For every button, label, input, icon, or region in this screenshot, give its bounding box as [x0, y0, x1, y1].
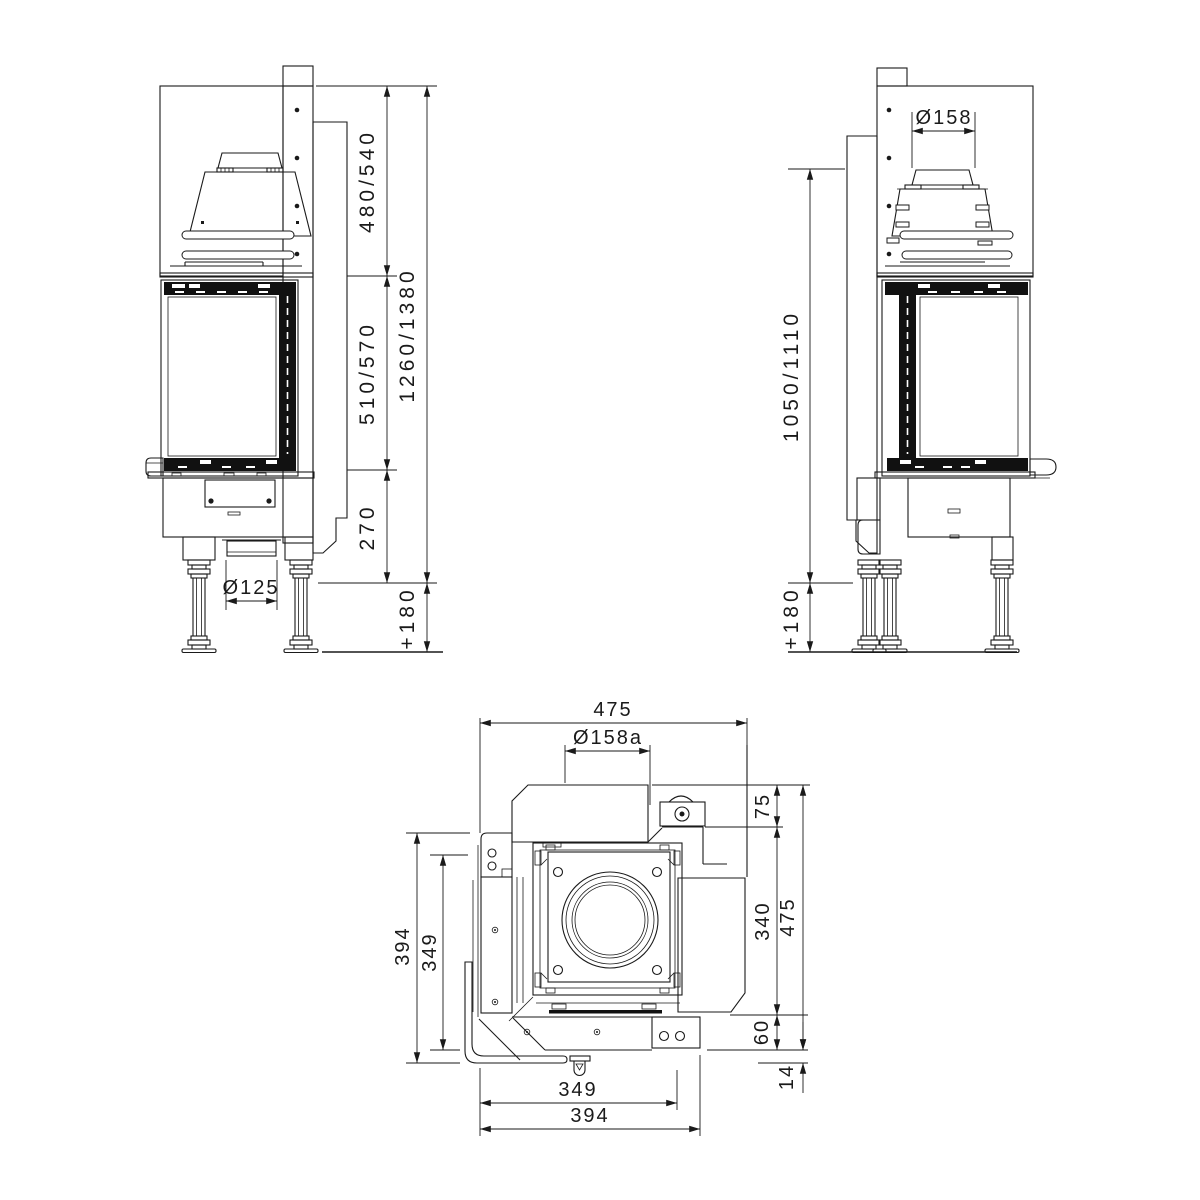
plan-body-frame — [533, 843, 682, 995]
side-frame-bottom — [887, 458, 1028, 471]
side-rear-stub — [877, 68, 907, 86]
front-casing — [160, 86, 283, 276]
dim-plan-offset-75: 75 — [752, 793, 774, 819]
plan-flue-plate — [548, 852, 670, 982]
front-air-duct — [227, 541, 276, 556]
dim-plan-width: 475 — [593, 699, 632, 721]
side-leg-front — [985, 560, 1019, 653]
front-rear-stub — [283, 66, 313, 86]
front-firebox — [146, 280, 314, 478]
side-firebox — [875, 280, 1056, 478]
dim-front-total-height: 1260/1380 — [396, 267, 419, 402]
front-dimensions: 480/540 510/570 270 1260/1380 +180 Ø125 — [223, 86, 437, 652]
front-frame-bottom — [164, 458, 296, 471]
side-flue-dome — [885, 170, 1013, 266]
plan-left-bracket — [473, 833, 523, 1017]
side-glass — [920, 297, 1018, 456]
dim-plan-glass-width: 349 — [558, 1079, 597, 1101]
plan-latch-pin — [570, 1056, 590, 1076]
plan-latch-bracket — [660, 796, 705, 826]
front-frame-top — [164, 282, 294, 295]
front-leg-left — [182, 560, 216, 653]
side-view — [788, 68, 1056, 653]
plan-right-panel — [678, 878, 745, 1012]
dim-front-glass-section: 510/570 — [356, 321, 379, 425]
dim-side-legs: +180 — [780, 586, 803, 649]
dim-front-base-section: 270 — [356, 503, 379, 550]
front-back-panel — [313, 122, 347, 553]
side-screw-dots — [887, 108, 892, 257]
front-flue-dome — [170, 153, 311, 266]
front-plinth-panel — [205, 480, 275, 507]
dim-front-legs: +180 — [396, 586, 419, 649]
dim-plan-side-body: 394 — [392, 926, 414, 965]
dim-plan-body-width: 394 — [570, 1105, 609, 1127]
plan-flue-opening — [562, 872, 658, 968]
dim-front-duct: Ø125 — [223, 577, 280, 599]
plan-rail-bracket — [652, 1017, 700, 1048]
dim-plan-rear-60: 60 — [751, 1019, 773, 1045]
plan-flue-box — [512, 785, 662, 847]
front-baffle-bar-1 — [182, 231, 294, 239]
dim-plan-flue: Ø158a — [573, 727, 643, 749]
side-back-panel — [847, 136, 877, 553]
front-leg-right — [284, 560, 318, 653]
side-baffle-bar-1 — [900, 231, 1013, 239]
side-baffle-bar-2 — [902, 251, 1012, 259]
front-plinth — [163, 478, 313, 560]
technical-drawing-page: 480/540 510/570 270 1260/1380 +180 Ø125 — [0, 0, 1200, 1200]
front-baffle-bar-2 — [182, 251, 294, 259]
dim-plan-depth-340: 340 — [752, 901, 774, 940]
side-handle-nose — [1030, 459, 1056, 475]
dim-plan-frame-gap: 14 — [776, 1064, 798, 1090]
dim-side-height: 1050/1110 — [780, 310, 803, 442]
side-plinth — [857, 478, 1013, 560]
side-bench-plate — [875, 472, 1035, 478]
front-glass — [168, 297, 276, 456]
dim-plan-side-glass: 349 — [419, 932, 441, 971]
dim-plan-depth-overall: 475 — [777, 897, 799, 936]
top-view — [465, 745, 747, 1076]
dim-front-top-section: 480/540 — [356, 129, 379, 233]
fireplace-insert-drawing: 480/540 510/570 270 1260/1380 +180 Ø125 — [0, 0, 1200, 1200]
dim-side-flue: Ø158 — [916, 107, 973, 129]
